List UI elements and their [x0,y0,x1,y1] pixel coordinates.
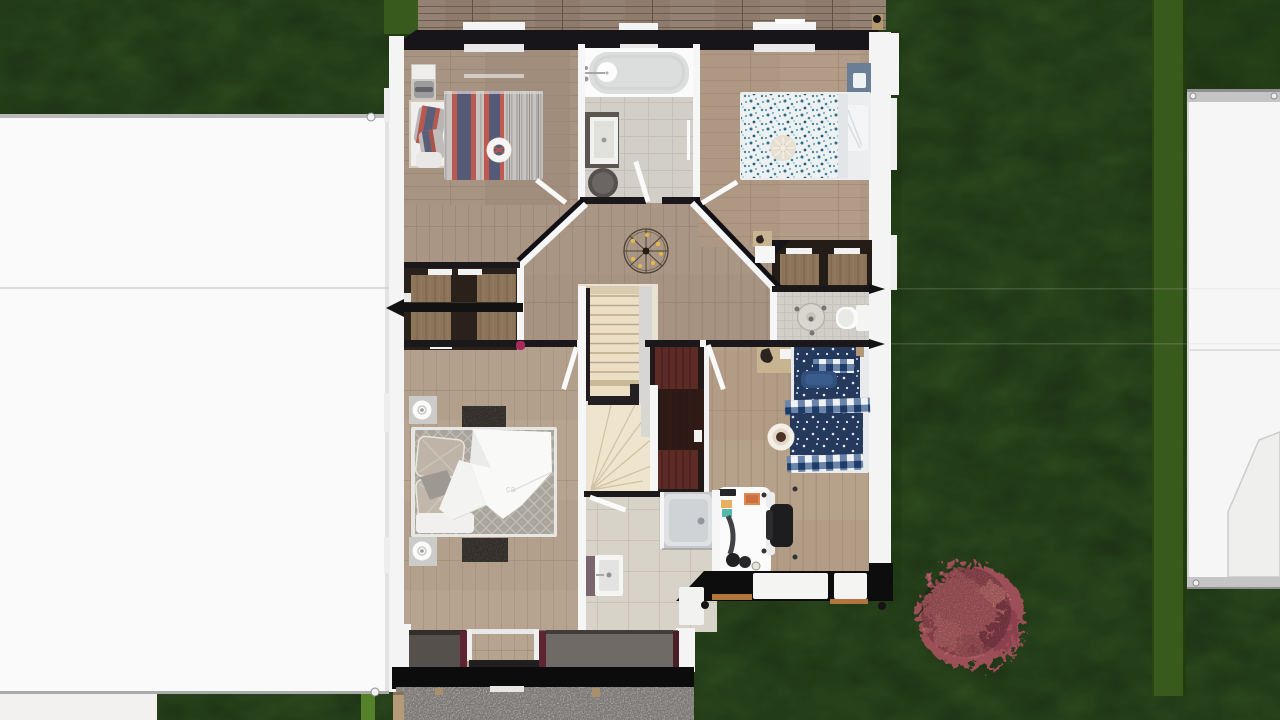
svg-text:ca: ca [506,484,516,494]
